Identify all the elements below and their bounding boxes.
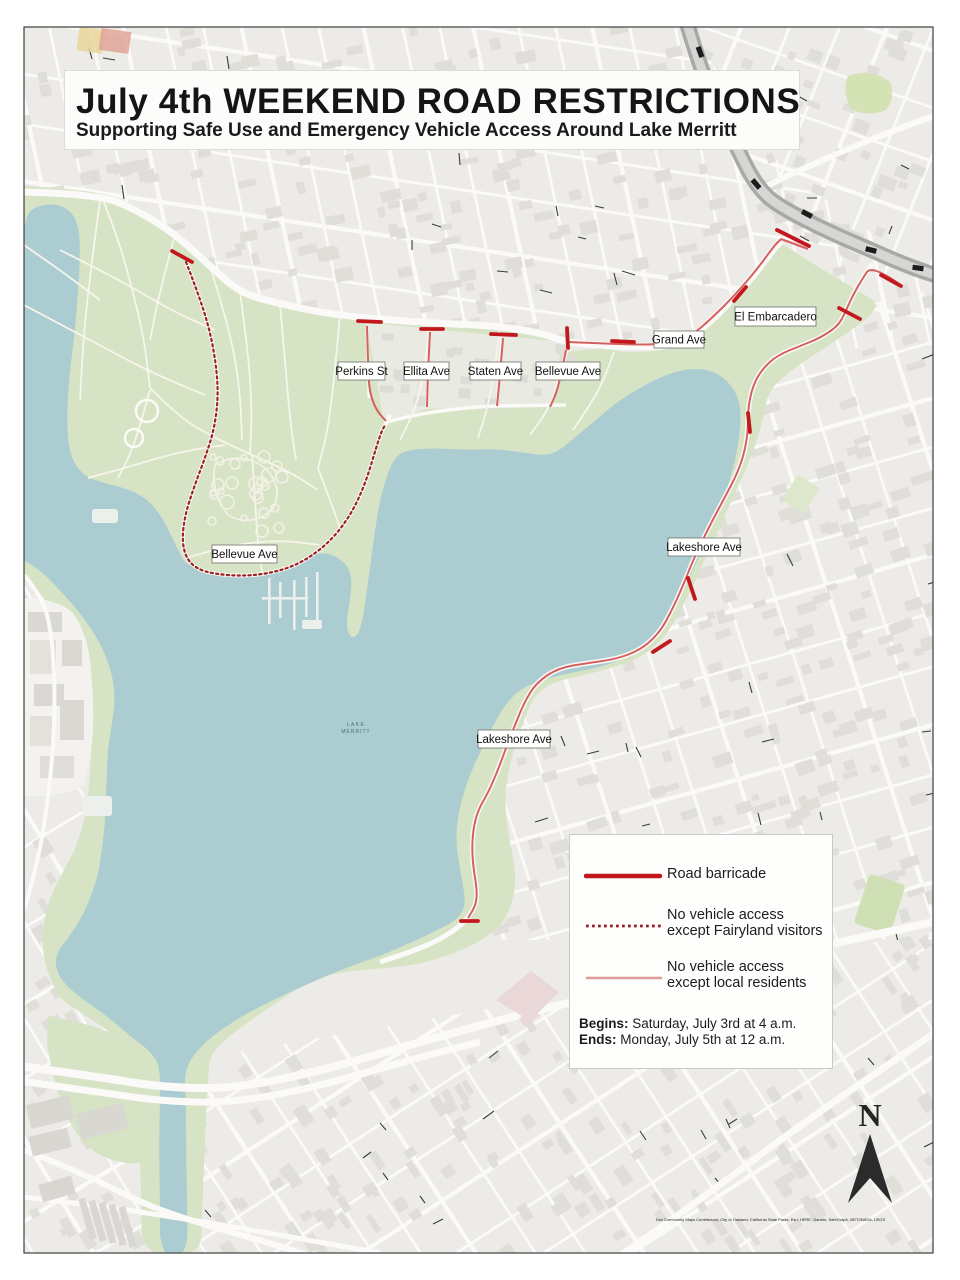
svg-text:Perkins St: Perkins St — [335, 366, 388, 378]
svg-text:Grand Ave: Grand Ave — [652, 335, 706, 347]
svg-text:Lakeshore Ave: Lakeshore Ave — [476, 734, 552, 746]
svg-text:MERRITT: MERRITT — [341, 729, 370, 735]
svg-text:Staten Ave: Staten Ave — [468, 366, 523, 378]
svg-text:LAKE: LAKE — [347, 722, 366, 728]
svg-text:El Embarcadero: El Embarcadero — [734, 312, 816, 324]
svg-text:N: N — [858, 1097, 881, 1133]
svg-text:Ellita Ave: Ellita Ave — [403, 366, 450, 378]
svg-text:Lakeshore Ave: Lakeshore Ave — [666, 542, 742, 554]
svg-text:Bellevue Ave: Bellevue Ave — [211, 549, 277, 561]
svg-text:Bellevue Ave: Bellevue Ave — [535, 366, 601, 378]
